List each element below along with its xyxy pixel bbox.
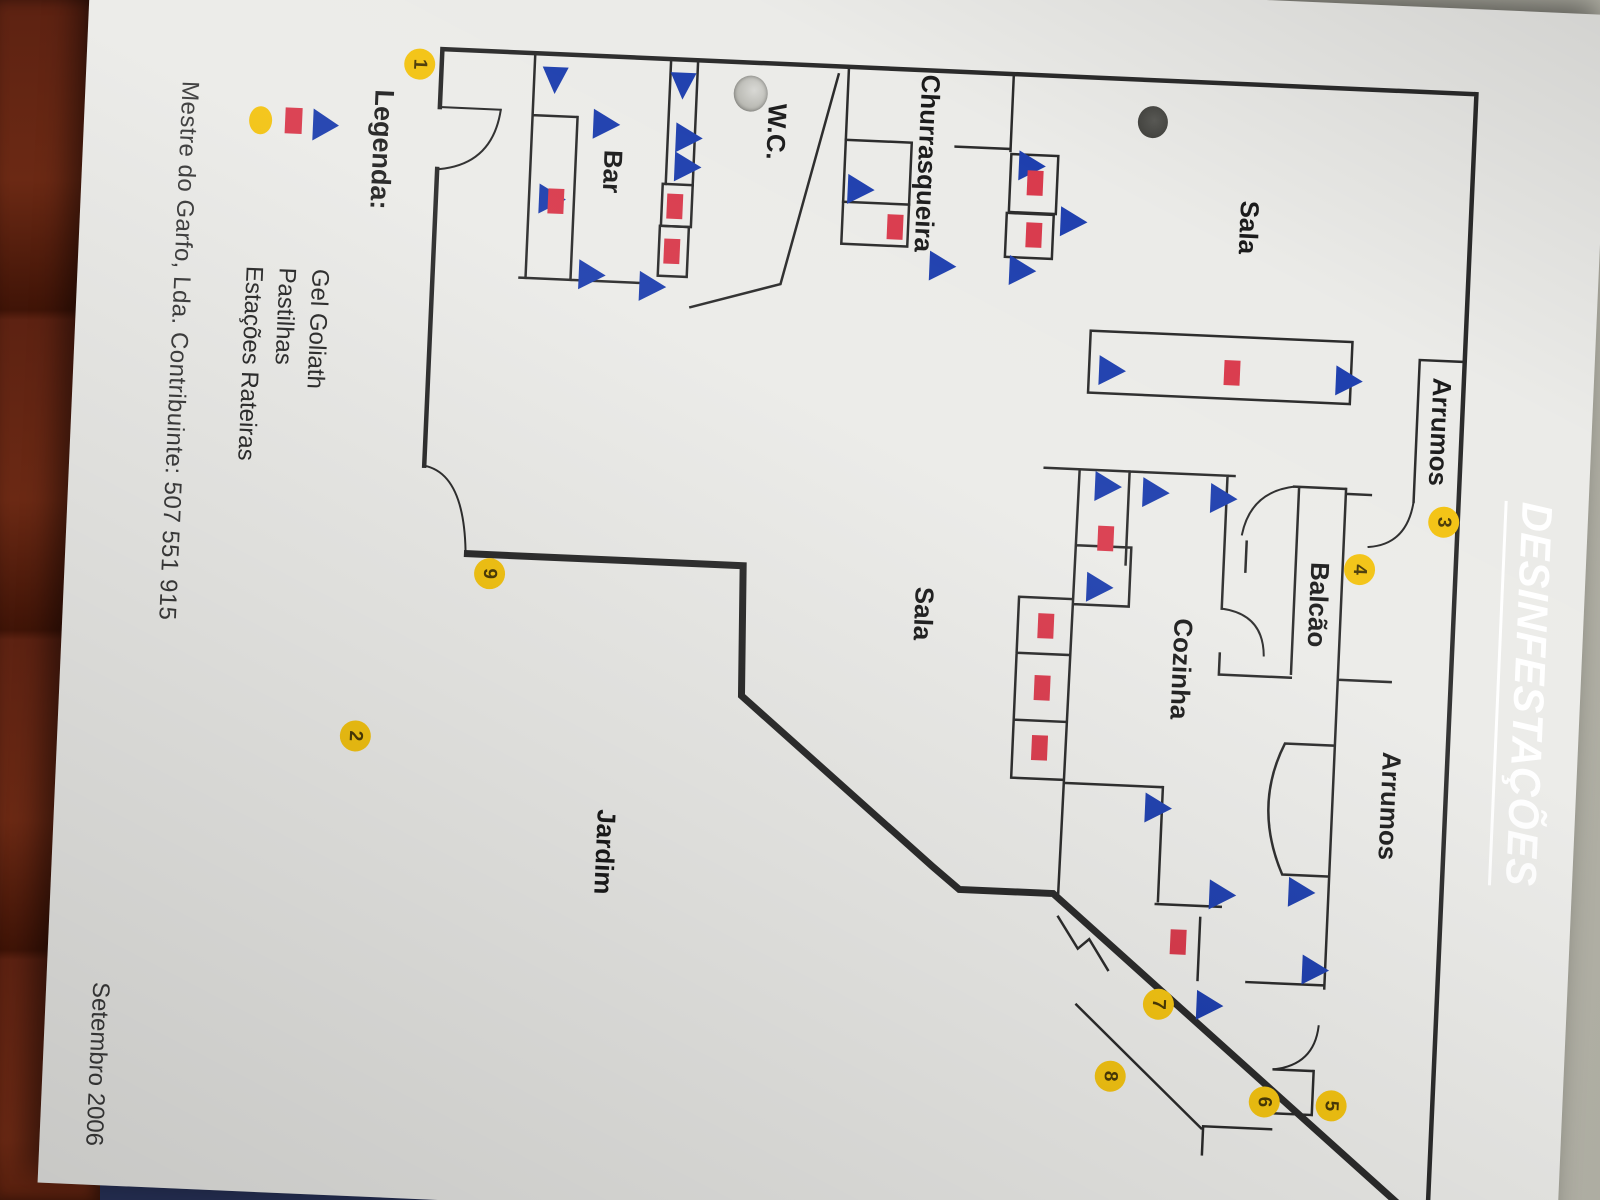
photo-of-floorplan: DESINFESTAÇÕES [0,0,1600,1200]
room-label-wc: W.C. [759,103,792,161]
gel-goliath-marker-icon [639,271,667,302]
gel-goliath-marker-icon [1210,483,1238,514]
gel-goliath-marker-icon [1301,954,1329,985]
pastilha-rect-icon [285,107,303,134]
pastilha-marker-icon [887,214,904,240]
room-label-balco: Balcão [1301,562,1336,649]
gel-goliath-marker-icon [1060,206,1088,237]
gel-goliath-marker-icon [1196,990,1224,1021]
gel-goliath-marker-icon [669,72,696,100]
gel-goliath-marker-icon [1288,877,1316,908]
legend: Legenda: Gel Goliath Pastilhas Estações … [229,84,399,467]
gel-goliath-marker-icon [593,109,621,140]
gel-goliath-triangle-icon [313,109,340,142]
room-label-sala: Sala [1232,200,1265,255]
legend-label: Gel Goliath [301,268,334,389]
pastilha-marker-icon [666,194,683,220]
gel-goliath-marker-icon [578,259,606,290]
room-label-arrumos: Arrumos [1371,751,1407,861]
gel-goliath-marker-icon [1209,879,1237,910]
gel-goliath-marker-icon [675,122,703,153]
document-paper: DESINFESTAÇÕES [38,0,1600,1200]
estacao-rateira-circle-icon [249,106,273,135]
legend-label: Estações Rateiras [232,265,268,461]
pastilha-marker-icon [1031,735,1048,761]
room-label-cozinha: Cozinha [1163,618,1198,720]
legend-label: Pastilhas [269,267,301,366]
pastilha-marker-icon [547,188,564,214]
gel-goliath-marker-icon [1098,355,1126,386]
gel-goliath-marker-icon [1144,792,1172,823]
pastilha-marker-icon [1027,170,1044,196]
pastilha-marker-icon [1034,675,1051,701]
gel-goliath-marker-icon [1142,477,1170,508]
pastilha-marker-icon [663,238,680,264]
pastilha-marker-icon [1223,360,1240,386]
pastilha-marker-icon [1170,929,1187,955]
pastilha-marker-icon [1037,613,1054,639]
gel-goliath-marker-icon [542,66,569,94]
room-label-bar: Bar [596,149,629,194]
gel-goliath-marker-icon [1335,365,1363,396]
gel-goliath-marker-icon [1009,255,1037,286]
gel-goliath-marker-icon [929,251,957,282]
room-label-sala: Sala [907,586,940,641]
pastilha-marker-icon [1097,526,1114,552]
room-label-jardim: Jardim [587,809,622,896]
gel-goliath-marker-icon [847,174,875,205]
gel-goliath-marker-icon [1086,572,1114,603]
room-label-arrumos: Arrumos [1422,377,1458,487]
gel-goliath-marker-icon [1094,471,1122,502]
gel-goliath-marker-icon [674,151,702,182]
pastilha-marker-icon [1025,222,1042,248]
